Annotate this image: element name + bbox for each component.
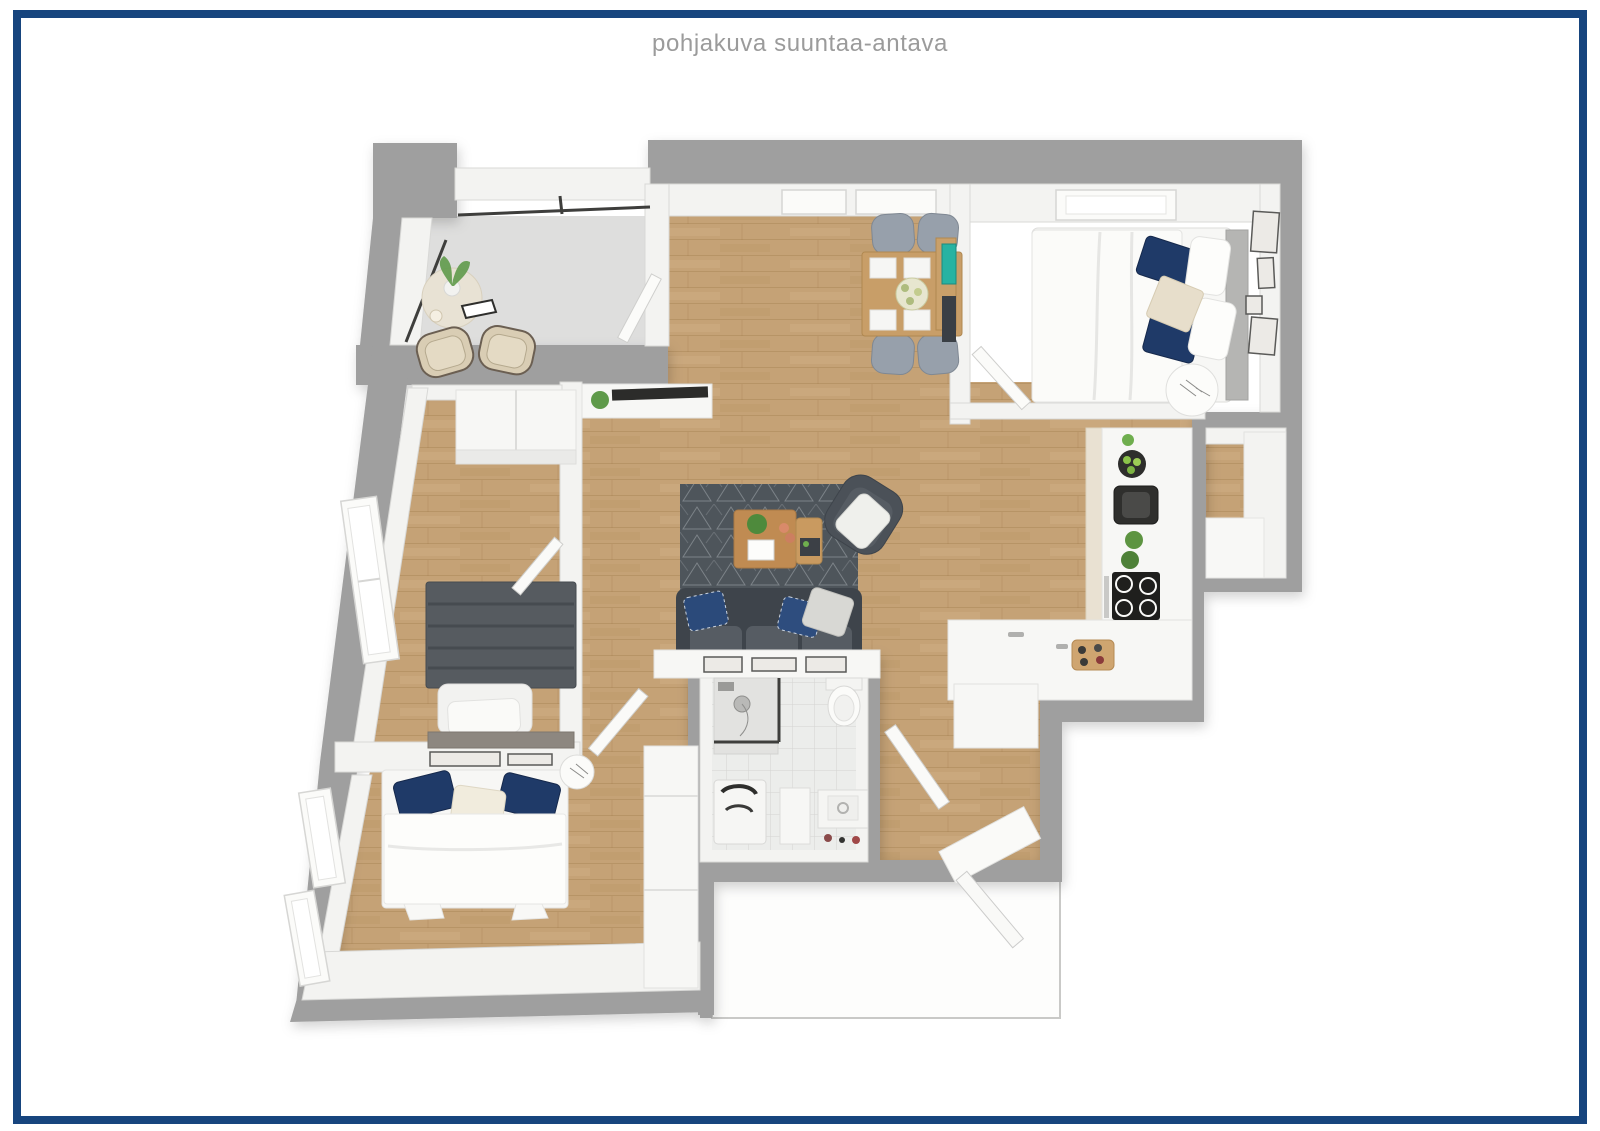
toiletry [852, 836, 860, 844]
bed-bench [428, 732, 574, 748]
wall-right-upper [1280, 140, 1302, 432]
page-title: pohjakuva suuntaa-antava [0, 30, 1600, 58]
dining-window-2 [856, 190, 936, 214]
hall-wardrobe [644, 746, 698, 988]
fruit [1127, 466, 1135, 474]
shower-shelf [718, 682, 734, 691]
food-item [1096, 656, 1104, 664]
herb-pot [1125, 531, 1143, 549]
balcony-railing-top [458, 207, 650, 215]
teal-artwork [942, 244, 956, 284]
dark-artwork [942, 296, 956, 342]
washing-machine [714, 780, 766, 844]
flower [901, 284, 909, 292]
divider-frame [508, 754, 552, 765]
vanity-sink [818, 790, 868, 828]
toilet [826, 678, 862, 726]
entry-landing [712, 880, 1060, 1018]
bed1-window-inner [1066, 196, 1166, 214]
wall-entry-right [1040, 698, 1062, 882]
tray-plant [803, 541, 809, 547]
bottom-bed [382, 770, 568, 920]
place-setting [904, 310, 930, 330]
white-pillow [447, 698, 521, 736]
balcony-cup [430, 310, 442, 322]
table-tray [800, 538, 820, 556]
wall-landing-left [700, 880, 712, 1018]
wall-balcony-neighbor [455, 168, 650, 200]
floor-plan [0, 0, 1600, 1131]
wall-bottombed-south-inner [302, 942, 700, 1000]
closet-cabinet-low [1206, 518, 1264, 578]
place-setting [870, 310, 896, 330]
dining-area [862, 212, 962, 375]
flat-frame [806, 657, 846, 672]
flat-frame [752, 658, 796, 671]
wall-balcony-corner [373, 143, 457, 218]
bed1-side-table [1166, 364, 1218, 416]
food-item [1094, 644, 1102, 652]
wall-closet-left [1192, 412, 1206, 592]
dining-window-1 [782, 190, 846, 214]
fruit [1123, 456, 1131, 464]
flower-centerpiece [896, 278, 928, 310]
table-frame [748, 540, 774, 560]
oven-handle [1104, 576, 1109, 618]
place-setting [904, 258, 930, 278]
candle [779, 523, 789, 533]
sideboard-plant [591, 391, 609, 409]
leftbed-wardrobe-counter [456, 450, 576, 464]
cutting-board [1072, 640, 1114, 670]
toiletry [839, 837, 845, 843]
faucet [1056, 644, 1068, 649]
dining-chair [871, 213, 916, 256]
candle [785, 533, 795, 543]
bottombed-side-table [560, 755, 594, 789]
herb-pot [1121, 551, 1139, 569]
flower [906, 297, 914, 305]
bath-storage-unit [780, 788, 810, 844]
wall-closet-right [1286, 425, 1302, 592]
railing-post [560, 196, 562, 214]
wall-art-frames [1246, 211, 1279, 355]
dining-chair [871, 333, 916, 376]
faucet [1008, 632, 1024, 637]
divider-frame [430, 752, 500, 766]
entry-closet [954, 684, 1038, 748]
coffee-machine-top [1122, 492, 1150, 518]
flat-frame [704, 657, 742, 672]
table-plant [747, 514, 767, 534]
counter-edge [1086, 428, 1102, 624]
wall-kitchen-bottom [1040, 698, 1204, 722]
flower [914, 288, 922, 296]
fruit [1133, 458, 1141, 466]
wall-top [648, 140, 1302, 184]
toiletry [824, 834, 832, 842]
greens [1122, 434, 1134, 446]
white-duvet [384, 814, 566, 904]
food-item [1080, 658, 1088, 666]
food-item [1078, 646, 1086, 654]
place-setting [870, 258, 896, 278]
wall-bed1-bottom-inner [950, 403, 1205, 419]
